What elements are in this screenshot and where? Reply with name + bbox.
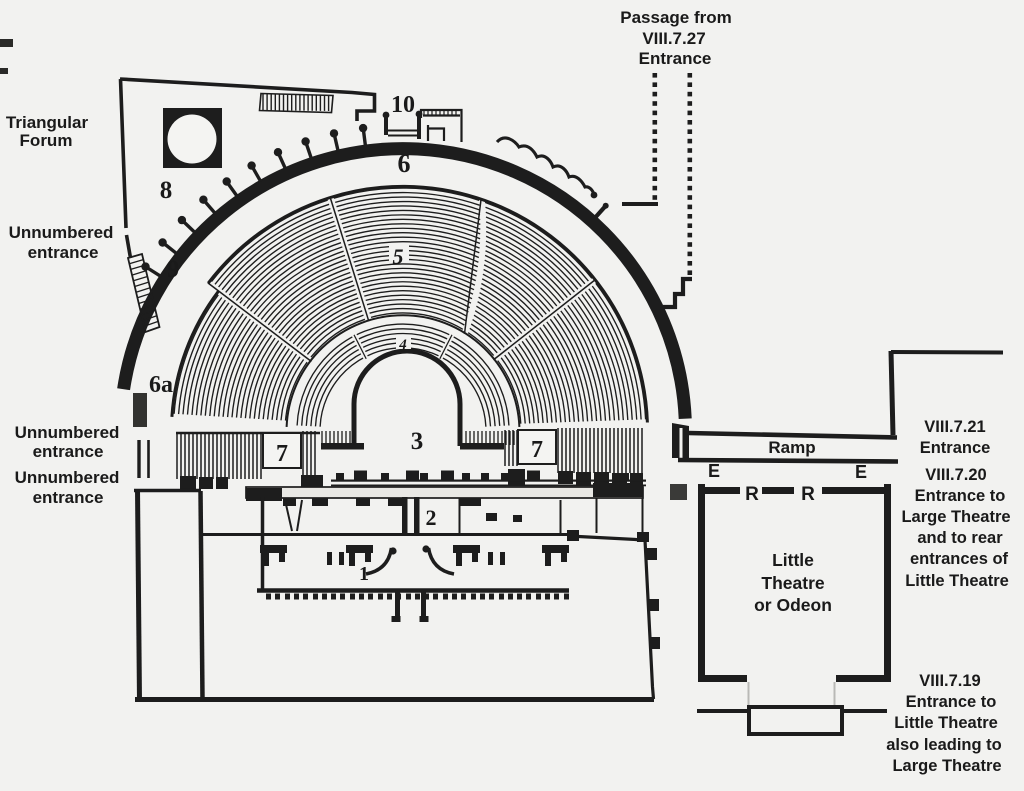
svg-text:Entrance to: Entrance to [906, 693, 997, 711]
svg-text:or Odeon: or Odeon [754, 595, 832, 615]
svg-text:9: 9 [167, 256, 180, 283]
svg-text:Unnumbered: Unnumbered [15, 468, 120, 487]
svg-text:3: 3 [411, 428, 424, 455]
svg-text:entrance: entrance [33, 488, 104, 507]
svg-text:and to rear: and to rear [917, 529, 1003, 547]
svg-text:also leading to: also leading to [886, 736, 1002, 754]
svg-text:VIII.7.19: VIII.7.19 [919, 672, 980, 690]
svg-text:VIII.7.20: VIII.7.20 [925, 466, 986, 484]
svg-text:7: 7 [531, 437, 543, 463]
svg-text:6: 6 [398, 149, 411, 178]
svg-text:R: R [801, 484, 815, 505]
svg-text:Large Theatre: Large Theatre [892, 757, 1001, 775]
svg-text:E: E [708, 461, 720, 481]
svg-text:10: 10 [391, 92, 415, 118]
svg-text:4: 4 [398, 337, 407, 353]
svg-text:Unnumbered: Unnumbered [9, 223, 114, 242]
svg-text:Little Theatre: Little Theatre [905, 572, 1009, 590]
svg-text:Little: Little [772, 550, 814, 570]
svg-text:Forum: Forum [20, 131, 73, 150]
svg-text:7: 7 [276, 441, 288, 467]
svg-text:2: 2 [426, 505, 437, 530]
svg-text:entrances of: entrances of [910, 550, 1009, 568]
svg-text:6a: 6a [149, 372, 173, 398]
svg-text:Unnumbered: Unnumbered [15, 423, 120, 442]
svg-text:Passage from: Passage from [620, 8, 732, 27]
svg-text:Theatre: Theatre [761, 573, 824, 593]
svg-text:entrance: entrance [33, 442, 104, 461]
svg-text:Entrance: Entrance [920, 439, 991, 457]
svg-text:VIII.7.27: VIII.7.27 [642, 29, 705, 48]
svg-text:Entrance: Entrance [639, 49, 712, 68]
svg-text:1: 1 [359, 563, 369, 585]
svg-text:entrance: entrance [28, 243, 99, 262]
svg-text:Ramp: Ramp [768, 438, 815, 457]
svg-text:E: E [855, 462, 867, 482]
svg-text:R: R [745, 484, 759, 505]
svg-text:5: 5 [393, 244, 404, 269]
svg-text:Entrance to: Entrance to [915, 487, 1006, 505]
svg-text:Triangular: Triangular [6, 113, 89, 132]
svg-text:Large Theatre: Large Theatre [901, 508, 1010, 526]
svg-text:8: 8 [160, 177, 173, 204]
svg-text:Little Theatre: Little Theatre [894, 714, 998, 732]
svg-text:VIII.7.21: VIII.7.21 [924, 418, 985, 436]
